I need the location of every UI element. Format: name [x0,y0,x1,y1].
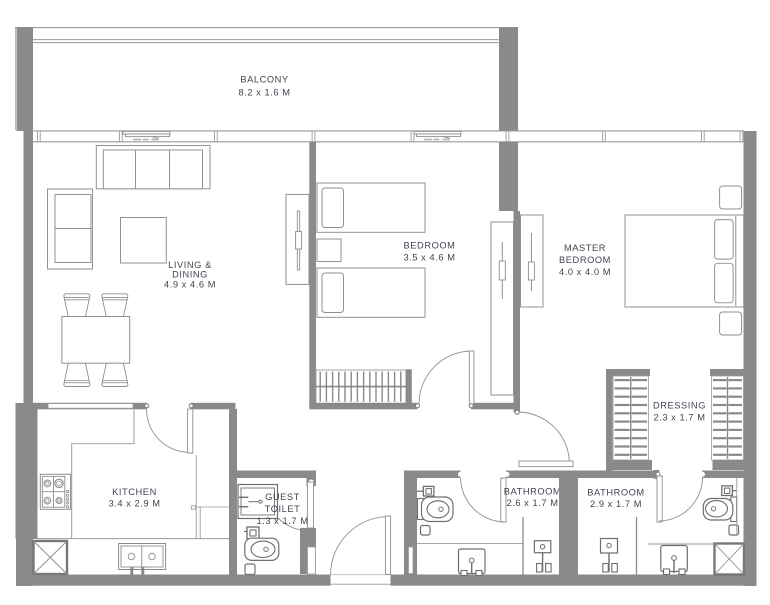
svg-text:LIVING &: LIVING & [168,260,212,270]
svg-text:3.4 x 2.9 M: 3.4 x 2.9 M [108,499,160,509]
svg-text:DINING: DINING [172,270,208,280]
svg-text:2.3 x 1.7 M: 2.3 x 1.7 M [653,413,705,423]
svg-text:GUEST: GUEST [265,492,300,502]
svg-text:DRESSING: DRESSING [653,401,706,411]
svg-text:KITCHEN: KITCHEN [112,487,157,497]
svg-text:BATHROOM: BATHROOM [504,487,561,497]
svg-text:BEDROOM: BEDROOM [559,255,611,265]
svg-text:BATHROOM: BATHROOM [587,488,644,498]
svg-text:BALCONY: BALCONY [240,75,288,85]
svg-text:2.6 x 1.7 M: 2.6 x 1.7 M [506,498,558,508]
svg-text:4.9 x 4.6 M: 4.9 x 4.6 M [164,279,216,289]
svg-text:1.3 x 1.7 M: 1.3 x 1.7 M [256,516,308,526]
svg-text:TOILET: TOILET [265,504,301,514]
svg-text:BEDROOM: BEDROOM [404,241,456,251]
svg-text:2.9 x 1.7 M: 2.9 x 1.7 M [590,499,642,509]
svg-text:3.5 x 4.6 M: 3.5 x 4.6 M [403,253,455,263]
svg-text:4.0 x 4.0 M: 4.0 x 4.0 M [559,267,611,277]
svg-text:MASTER: MASTER [564,243,606,253]
svg-text:8.2 x 1.6 M: 8.2 x 1.6 M [238,88,290,98]
